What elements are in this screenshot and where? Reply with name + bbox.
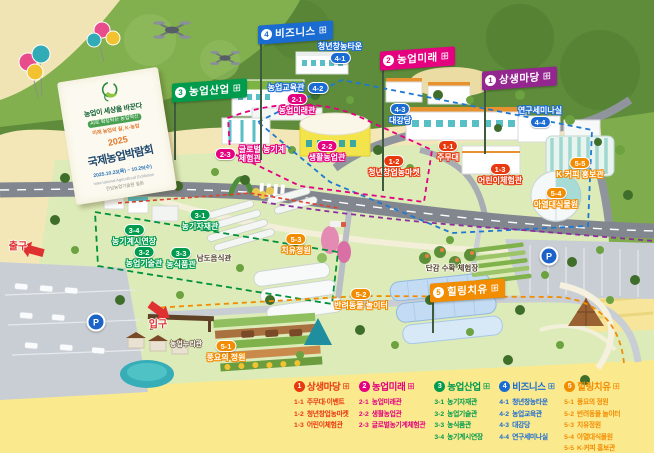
legend-item-id: 4-3 (499, 422, 509, 429)
map-label: 1-1 주무대 (437, 140, 459, 162)
legend-item-name: 글로벌농기계체험관 (372, 419, 426, 429)
map-label-id: 3-1 (190, 209, 211, 221)
legend-item: 3-2 농업기술관 (434, 408, 490, 418)
legend-item-name: 아열대식물원 (577, 431, 613, 441)
map-label-name: 연구세미나실 (518, 106, 562, 115)
zone-number: 1 (485, 75, 496, 87)
legend-item-name: 풍요의 정원 (577, 396, 608, 406)
legend-category-number: 2 (359, 381, 370, 392)
map-label-name: 어린이체험관 (478, 176, 522, 185)
legend-category-number: 3 (434, 381, 445, 392)
legend-item: 4-4 연구세미나실 (499, 431, 555, 441)
map-label-name: 청년창업농마켓 (368, 168, 420, 177)
map-label-id: 5-4 (546, 187, 567, 199)
legend-item-id: 5-2 (564, 411, 574, 418)
map-label-id: 1-1 (438, 140, 459, 152)
hall-grid-icon: ⊞ (543, 71, 551, 82)
map-label-id: 2-1 (287, 93, 308, 105)
legend-category: 5 힐링치유 ⊞ 5-1 풍요의 정원 5-2 (564, 379, 620, 452)
legend-item: 1-2 청년창업농마켓 (294, 408, 350, 418)
map-text: 입구 (149, 316, 167, 331)
legend-item-id: 4-4 (499, 434, 509, 441)
legend-item-name: 치유정원 (577, 419, 601, 429)
map-label-id: 3-3 (171, 247, 192, 259)
map-label: 3-3 농식품관 (166, 247, 195, 269)
map-label-name: K-커피 홍보관 (556, 170, 603, 179)
legend-item-name: 농업미래관 (372, 396, 402, 406)
map-text: 출구 (9, 238, 27, 253)
legend-item: 2-2 생활농업관 (359, 408, 425, 418)
map-label-id: 5-3 (286, 233, 307, 245)
map-label: 1-2 청년창업농마켓 (368, 155, 420, 177)
legend-item: 4-3 대강당 (499, 419, 555, 429)
map-label: 5-1 풍요의 정원 (206, 340, 245, 362)
map-label-id: 4-1 (330, 52, 351, 64)
map-label-name: 청년창농타운 (318, 42, 362, 51)
expo-logo-icon (96, 78, 123, 105)
zone-flag: 3 농업산업 ⊞ (172, 80, 247, 100)
map-label: 4-3 대강당 (389, 103, 411, 125)
map-label-id: 5-5 (570, 157, 591, 169)
legend-item-id: 1-2 (294, 411, 304, 418)
parking-icon: P (87, 313, 106, 332)
legend-item-id: 5-4 (564, 434, 574, 441)
legend-item-id: 5-1 (564, 399, 574, 406)
legend-item: 4-1 청년창농타운 (499, 396, 555, 406)
map-label: 4-4 연구세미나실 (518, 106, 562, 128)
zone-number: 2 (383, 55, 394, 67)
legend-item-name: 반려동물 놀이터 (577, 408, 620, 418)
legend-item-id: 4-1 (499, 399, 509, 406)
legend-item-name: 청년창농타운 (512, 396, 548, 406)
map-label: 3-2 농업기술관 (126, 246, 163, 268)
map-text: 단감 수확 체험장 (426, 263, 478, 274)
map-label-id: 3-4 (124, 224, 145, 236)
legend-item: 5-5 K-커피 홍보관 (564, 442, 620, 452)
zone-name: 힐링치유 (447, 282, 488, 300)
map-label-id: 2-2 (317, 140, 338, 152)
zone-flag: 1 상생마당 ⊞ (482, 68, 557, 88)
hall-grid-icon: ⊞ (491, 283, 499, 294)
legend-item: 3-4 농기계시연장 (434, 431, 490, 441)
map-label: 5-4 아열대식물원 (534, 187, 578, 209)
legend-item-id: 3-4 (434, 434, 444, 441)
legend-item-name: 농업교육관 (512, 408, 542, 418)
legend-item-name: 주무대·이벤트 (307, 396, 345, 406)
map-label-id: 1-3 (490, 163, 511, 175)
legend-item: 5-3 치유정원 (564, 419, 620, 429)
map-label-name: 아열대식물원 (534, 200, 578, 209)
legend-item-name: K-커피 홍보관 (577, 442, 615, 452)
zone-flag: 2 농업미래 ⊞ (380, 48, 455, 68)
legend-item-id: 2-3 (359, 422, 369, 429)
legend-category: 3 농업산업 ⊞ 3-1 농기자재관 3-2 (434, 379, 490, 441)
flag-pole (382, 56, 384, 191)
hall-grid-icon: ⊞ (233, 83, 241, 94)
legend-item: 2-1 농업미래관 (359, 396, 425, 406)
zone-name: 비즈니스 (275, 24, 316, 42)
legend-item: 1-3 어린이체험관 (294, 419, 350, 429)
legend-item-id: 3-2 (434, 411, 444, 418)
legend-item: 3-3 농식품관 (434, 419, 490, 429)
legend-category-number: 5 (564, 381, 575, 392)
legend-item: 2-3 글로벌농기계체험관 (359, 419, 425, 429)
map-label-name: 반려동물 놀이터 (334, 301, 388, 310)
map-label: 4-1 청년창농타운 (318, 42, 362, 64)
hall-grid-icon: ⊞ (441, 51, 449, 62)
map-label-name: 주무대 (437, 153, 459, 162)
map-label-name: 농업기술관 (126, 259, 163, 268)
map-text: 남도음식관 (197, 253, 232, 264)
map-label-name: 치유정원 (281, 246, 310, 255)
map-label: 2-1 농업미래관 (279, 93, 316, 115)
map-label-name: 생활농업관 (309, 153, 346, 162)
hall-grid-icon: ⊞ (342, 382, 350, 391)
legend-item-id: 3-1 (434, 399, 444, 406)
legend-item-id: 5-5 (564, 445, 574, 452)
legend-category-title: 힐링치유 (577, 379, 610, 393)
legend-item-id: 2-2 (359, 411, 369, 418)
map-label-name: 농업미래관 (279, 106, 316, 115)
flag-pole (260, 30, 262, 160)
map-label-name: 농식품관 (166, 260, 195, 269)
legend: 1 상생마당 ⊞ 1-1 주무대·이벤트 1-2 (294, 379, 650, 452)
map-label: 5-2 반려동물 놀이터 (334, 288, 388, 310)
legend-item: 5-1 풍요의 정원 (564, 396, 620, 406)
zone-number: 4 (261, 29, 272, 41)
map-label: 2-2 생활농업관 (309, 140, 346, 162)
map-label-name: 대강당 (389, 116, 411, 125)
zone-name: 농업미래 (397, 50, 438, 68)
map-label-id: 2-3 (215, 148, 236, 160)
map-label-id: 3-2 (134, 246, 155, 258)
legend-item: 3-1 농기자재관 (434, 396, 490, 406)
hall-grid-icon: ⊞ (613, 382, 621, 391)
legend-item-name: 청년창업농마켓 (307, 408, 349, 418)
legend-category: 4 비즈니스 ⊞ 4-1 청년창농타운 4-2 (499, 379, 555, 441)
map-label: 3-1 농기자재관 (182, 209, 219, 231)
legend-item-name: 어린이체험관 (307, 419, 343, 429)
legend-item-id: 2-1 (359, 399, 369, 406)
legend-item-name: 생활농업관 (372, 408, 402, 418)
legend-category: 2 농업미래 ⊞ 2-1 농업미래관 2-2 (359, 379, 425, 429)
map-label: 3-4 농기계시연장 (112, 224, 156, 246)
legend-item: 5-2 반려동물 놀이터 (564, 408, 620, 418)
legend-item-id: 1-1 (294, 399, 304, 406)
expo-banner: 농업이 세상을 바꾼다 AI로 확장되는 농업혁신 미래 농업의 길, K-농업… (57, 67, 177, 205)
map-label-id: 4-4 (530, 116, 551, 128)
hall-grid-icon: ⊞ (407, 382, 415, 391)
map-label-name: 농업교육관 (268, 83, 305, 92)
legend-item-name: 농기자재관 (447, 396, 477, 406)
zone-flag: 5 힐링치유 ⊞ (430, 280, 505, 300)
zone-flag: 4 비즈니스 ⊞ (258, 22, 333, 42)
legend-item-id: 1-3 (294, 422, 304, 429)
map-label: 5-5 K-커피 홍보관 (556, 157, 603, 179)
legend-item-id: 5-3 (564, 422, 574, 429)
map-label: 2-3 글로벌 농기계 체험관 (215, 145, 285, 163)
legend-item: 1-1 주무대·이벤트 (294, 396, 350, 406)
hall-grid-icon: ⊞ (319, 25, 327, 36)
legend-category-title: 농업산업 (447, 379, 480, 393)
map-text: 농업누리관 (170, 339, 202, 349)
map-label-name: 풍요의 정원 (206, 353, 245, 362)
legend-item: 5-4 아열대식물원 (564, 431, 620, 441)
hall-grid-icon: ⊞ (483, 382, 491, 391)
legend-category-title: 상생마당 (307, 379, 340, 393)
map-label-id: 5-1 (216, 340, 237, 352)
map-label-id: 1-2 (384, 155, 405, 167)
zone-name: 농업산업 (189, 82, 230, 100)
legend-item-name: 농기계시연장 (447, 431, 483, 441)
map-label-id: 5-2 (351, 288, 372, 300)
legend-item: 4-2 농업교육관 (499, 408, 555, 418)
legend-category-number: 1 (294, 381, 305, 392)
legend-category-number: 4 (499, 381, 510, 392)
legend-item-name: 대강당 (512, 419, 530, 429)
legend-category-title: 농업미래 (372, 379, 405, 393)
parking-icon: P (540, 247, 559, 266)
map-label: 5-3 치유정원 (281, 233, 310, 255)
hall-grid-icon: ⊞ (548, 382, 556, 391)
expo-map: 농업이 세상을 바꾼다 AI로 확장되는 농업혁신 미래 농업의 길, K-농업… (0, 0, 654, 453)
zone-number: 3 (175, 87, 186, 99)
legend-item-id: 4-2 (499, 411, 509, 418)
legend-item-id: 3-3 (434, 422, 444, 429)
legend-category: 1 상생마당 ⊞ 1-1 주무대·이벤트 1-2 (294, 379, 350, 429)
map-label-name: 농기계시연장 (112, 237, 156, 246)
map-label-id: 4-3 (390, 103, 411, 115)
map-label: 1-3 어린이체험관 (478, 163, 522, 185)
zone-number: 5 (433, 287, 444, 299)
zone-name: 상생마당 (499, 70, 540, 88)
legend-item-name: 농업기술관 (447, 408, 477, 418)
legend-category-title: 비즈니스 (512, 379, 545, 393)
map-label-name: 농기자재관 (182, 222, 219, 231)
legend-item-name: 연구세미나실 (512, 431, 548, 441)
legend-item-name: 농식품관 (447, 419, 471, 429)
